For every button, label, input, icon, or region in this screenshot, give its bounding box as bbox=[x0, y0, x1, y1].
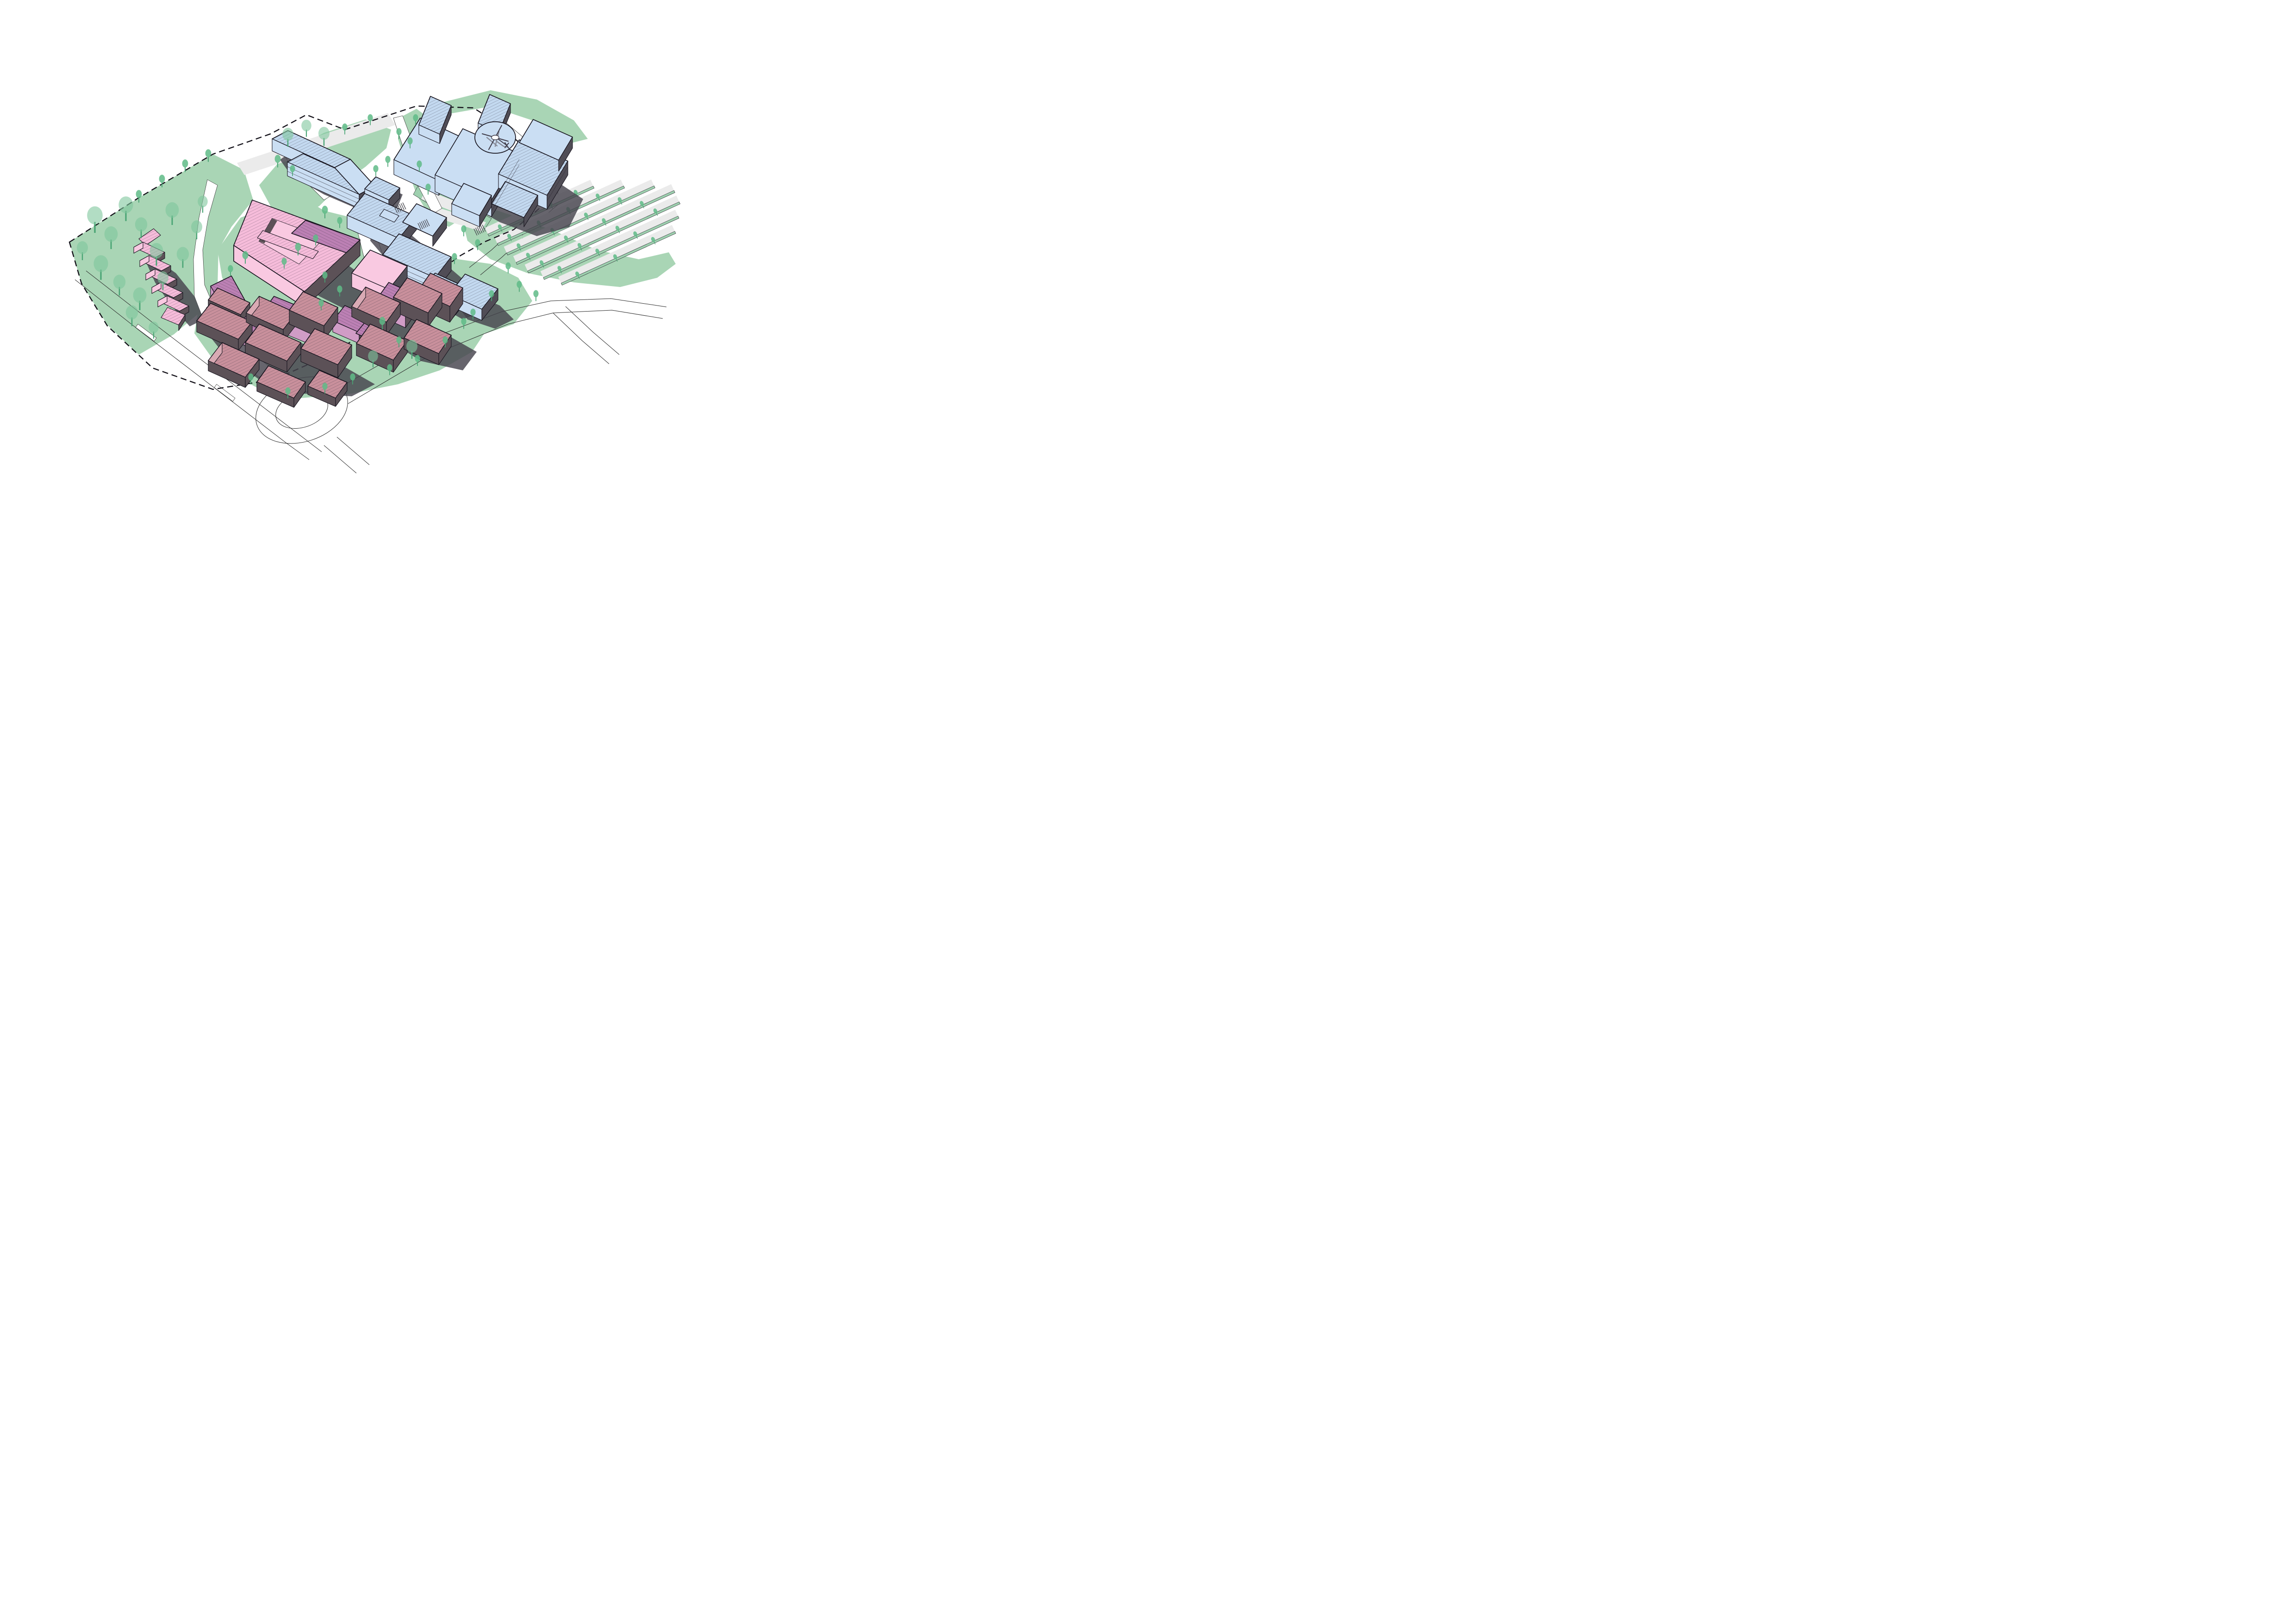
tree bbox=[373, 165, 378, 176]
tree bbox=[385, 156, 390, 167]
tree bbox=[505, 262, 510, 274]
east-road-edge bbox=[553, 306, 619, 364]
tree bbox=[461, 225, 466, 237]
tree bbox=[533, 290, 538, 301]
masterplan-canvas bbox=[0, 0, 724, 512]
southeast-road-edge bbox=[324, 437, 369, 473]
tree bbox=[301, 120, 311, 137]
helipad bbox=[475, 122, 516, 153]
